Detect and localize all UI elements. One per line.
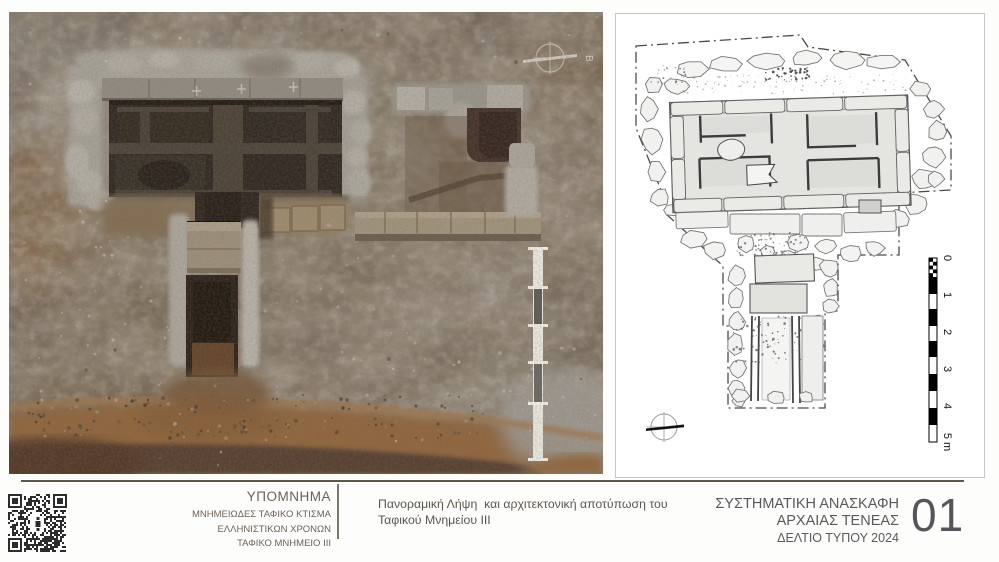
svg-text:3: 3	[941, 366, 953, 372]
svg-text:5 m: 5 m	[941, 433, 953, 451]
svg-text:2: 2	[941, 329, 953, 335]
svg-text:4: 4	[941, 403, 953, 409]
svg-text:0: 0	[941, 255, 953, 261]
svg-text:1: 1	[941, 292, 953, 298]
